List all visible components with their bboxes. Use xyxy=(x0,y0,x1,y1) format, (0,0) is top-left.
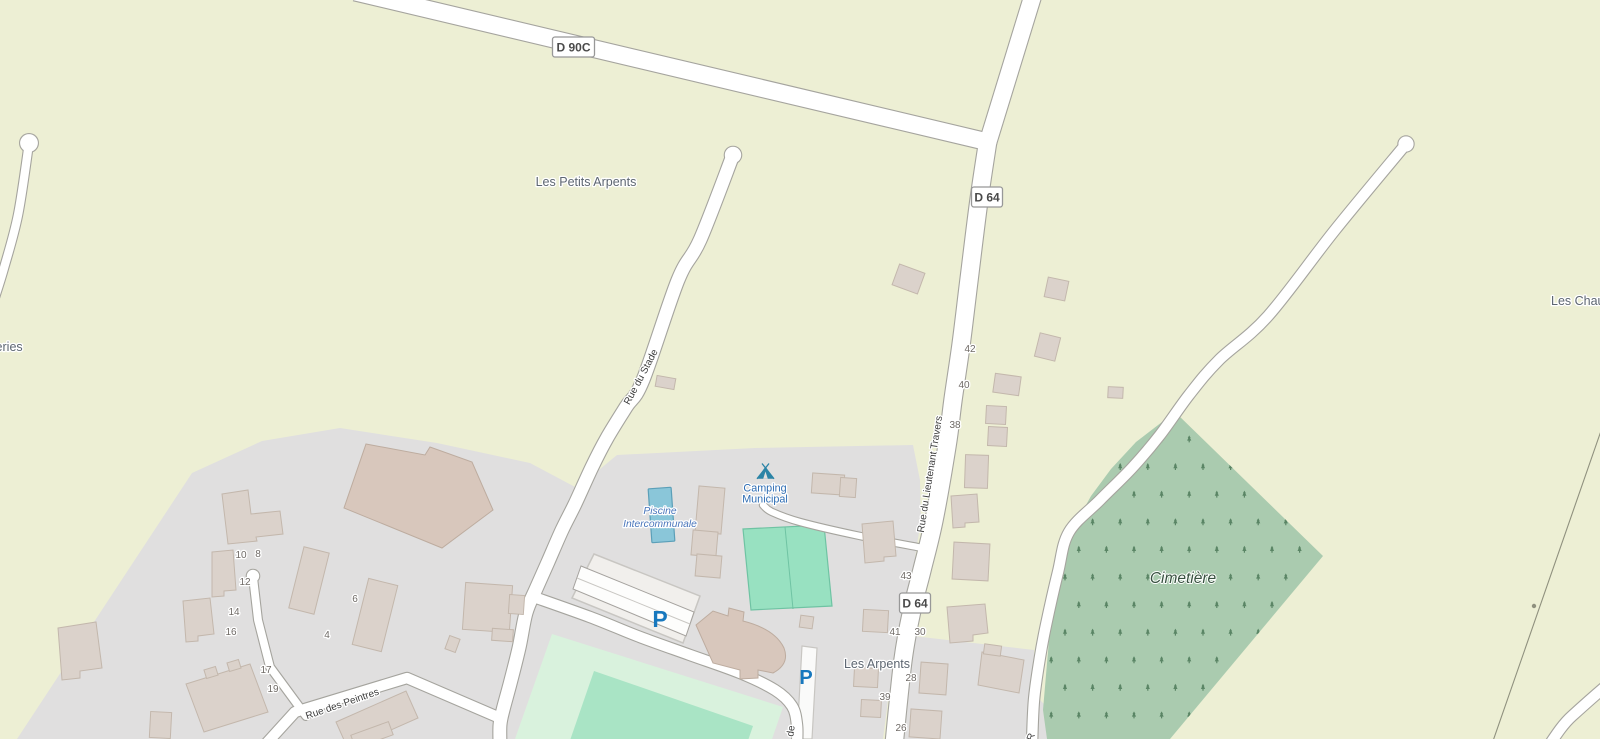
svg-text:4: 4 xyxy=(324,630,330,641)
svg-text:14: 14 xyxy=(228,607,240,618)
svg-text:D 64: D 64 xyxy=(902,597,928,611)
svg-text:38: 38 xyxy=(949,420,961,431)
svg-text:de: de xyxy=(785,724,797,737)
svg-text:26: 26 xyxy=(895,723,907,734)
svg-text:Les Petits Arpents: Les Petits Arpents xyxy=(536,175,637,189)
svg-text:D 64: D 64 xyxy=(974,191,1000,205)
svg-text:17: 17 xyxy=(260,665,272,676)
svg-text:30: 30 xyxy=(914,627,926,638)
svg-text:Intercommunale: Intercommunale xyxy=(623,519,697,530)
svg-text:8: 8 xyxy=(255,549,261,560)
svg-text:19: 19 xyxy=(267,684,279,695)
svg-text:6: 6 xyxy=(352,594,358,605)
svg-text:28: 28 xyxy=(905,673,917,684)
svg-text:40: 40 xyxy=(958,380,970,391)
svg-text:D 90C: D 90C xyxy=(556,41,590,55)
svg-text:16: 16 xyxy=(225,627,237,638)
svg-text:Cimetière: Cimetière xyxy=(1150,570,1217,587)
svg-text:Les Chaumes: Les Chaumes xyxy=(1551,294,1600,308)
svg-text:42: 42 xyxy=(964,344,976,355)
svg-text:P: P xyxy=(652,606,667,632)
svg-text:Piscine: Piscine xyxy=(643,506,676,517)
svg-text:41: 41 xyxy=(889,627,901,638)
svg-text:P: P xyxy=(799,667,812,689)
svg-text:39: 39 xyxy=(879,692,891,703)
svg-text:43: 43 xyxy=(900,571,912,582)
svg-text:10: 10 xyxy=(235,550,247,561)
svg-text:12: 12 xyxy=(239,577,251,588)
svg-text:Les Arpents: Les Arpents xyxy=(844,657,910,671)
svg-text:Les Coueries: Les Coueries xyxy=(0,340,23,354)
svg-text:Municipal: Municipal xyxy=(742,494,788,506)
